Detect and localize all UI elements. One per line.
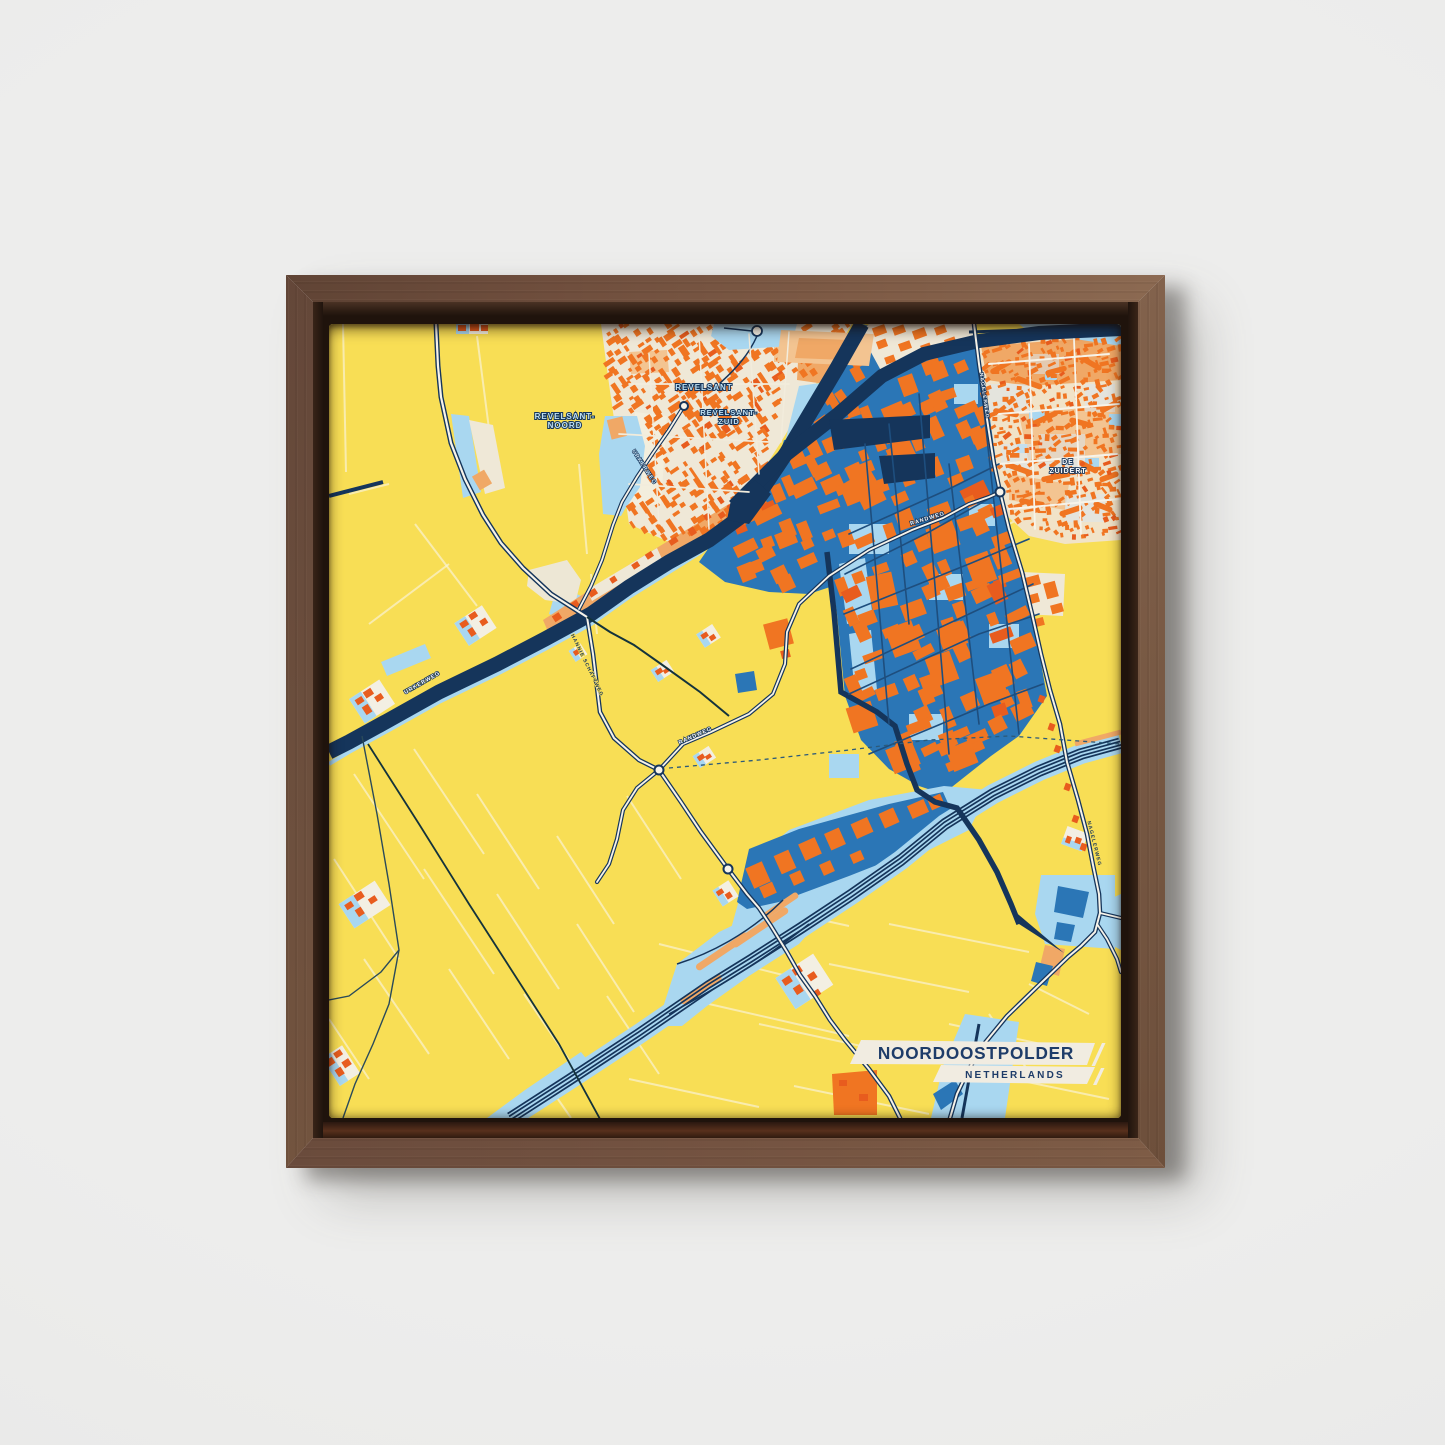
svg-text:REVELSANT-: REVELSANT- [535,412,596,421]
svg-text:DE: DE [1062,459,1074,466]
svg-text:REVELSANT-: REVELSANT- [700,408,758,417]
svg-text:REVELSANT: REVELSANT [675,383,732,392]
svg-text:NETHERLANDS: NETHERLANDS [965,1070,1065,1081]
svg-text:ZUID: ZUID [718,417,740,426]
svg-text:NOORD: NOORD [548,421,583,430]
svg-text:ZUIDERT: ZUIDERT [1049,468,1086,475]
svg-text:NOORDOOSTPOLDER: NOORDOOSTPOLDER [878,1043,1074,1063]
